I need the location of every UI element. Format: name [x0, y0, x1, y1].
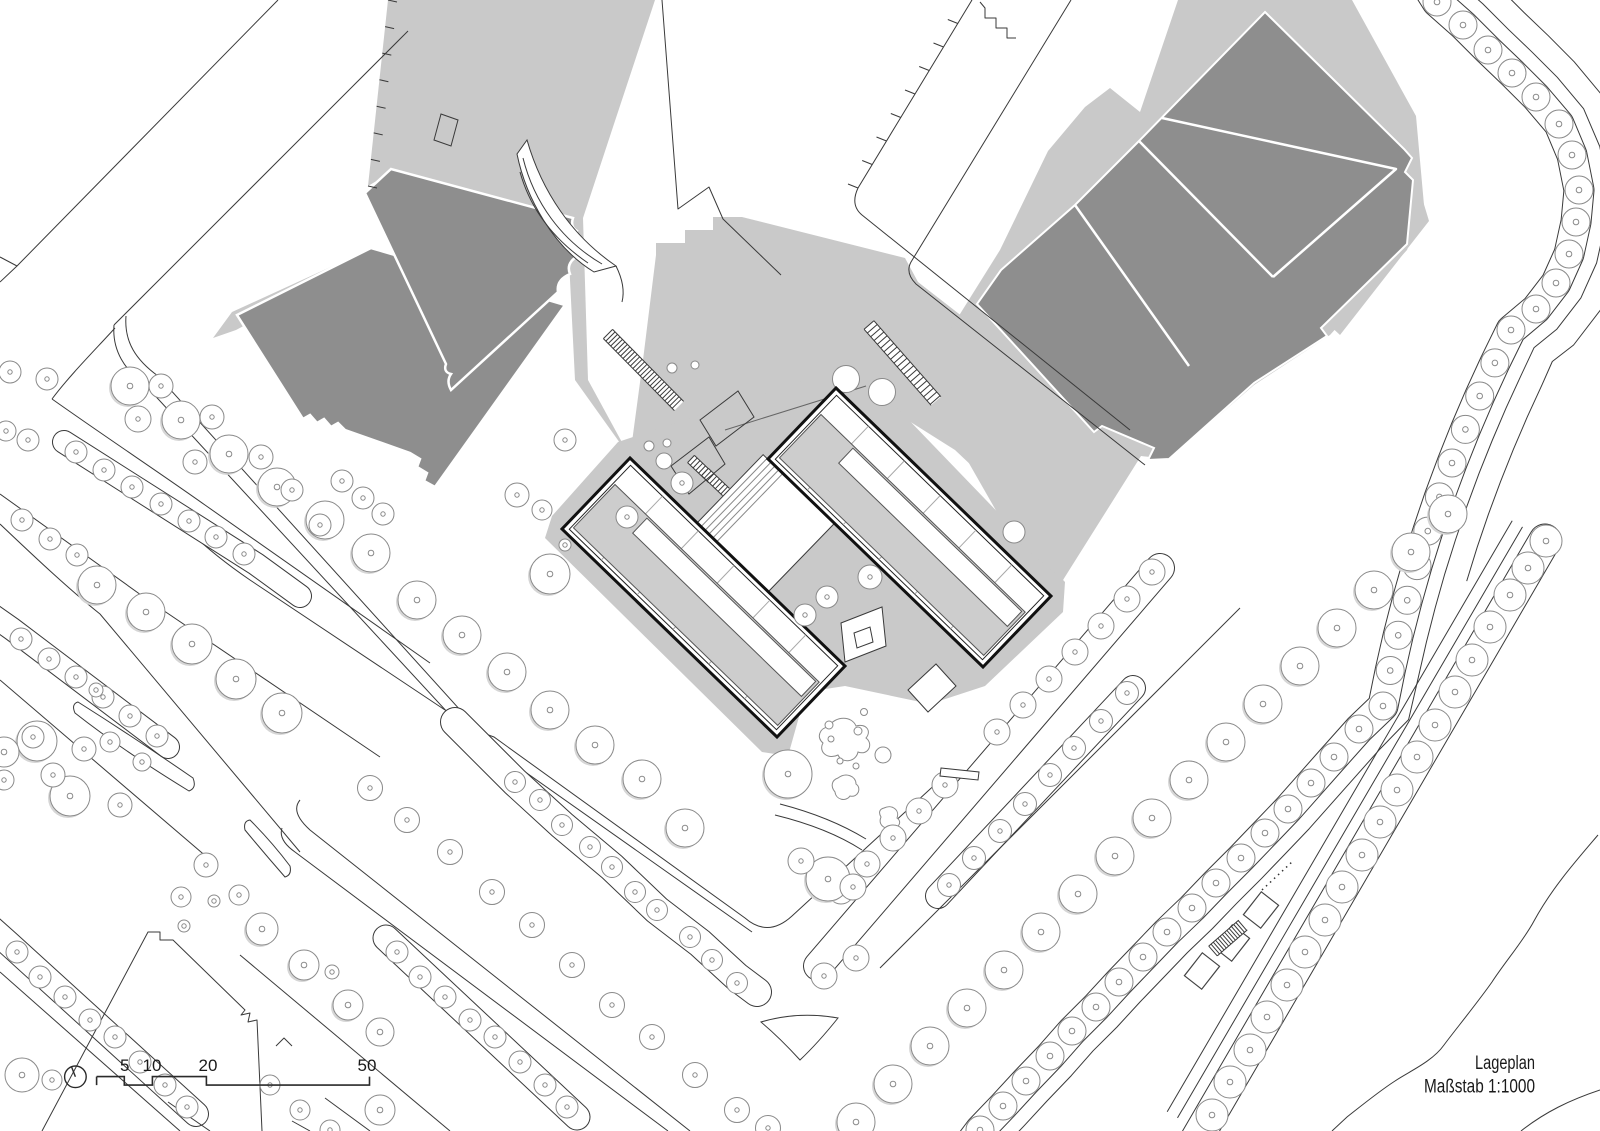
svg-text:Lageplan: Lageplan — [1475, 1053, 1535, 1074]
svg-text:10: 10 — [143, 1056, 162, 1075]
svg-text:50: 50 — [358, 1056, 377, 1075]
svg-text:Maßstab 1:1000: Maßstab 1:1000 — [1424, 1077, 1535, 1098]
svg-text:20: 20 — [199, 1056, 218, 1075]
svg-text:5: 5 — [120, 1056, 129, 1075]
